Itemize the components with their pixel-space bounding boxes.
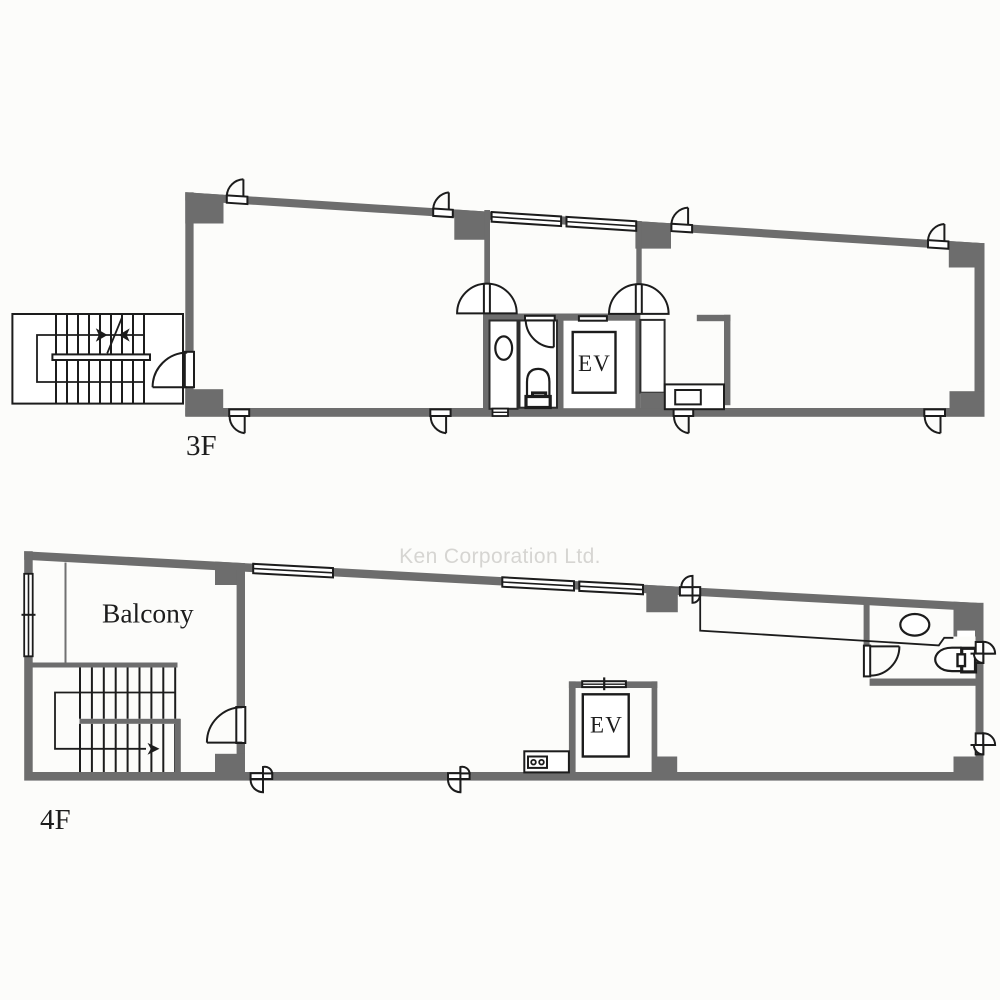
- svg-text:Balcony: Balcony: [102, 598, 194, 629]
- svg-text:EV: EV: [590, 713, 623, 738]
- svg-text:4F: 4F: [40, 804, 71, 836]
- svg-text:Ken Corporation Ltd.: Ken Corporation Ltd.: [399, 545, 601, 568]
- svg-text:EV: EV: [578, 351, 611, 376]
- svg-text:3F: 3F: [186, 430, 217, 462]
